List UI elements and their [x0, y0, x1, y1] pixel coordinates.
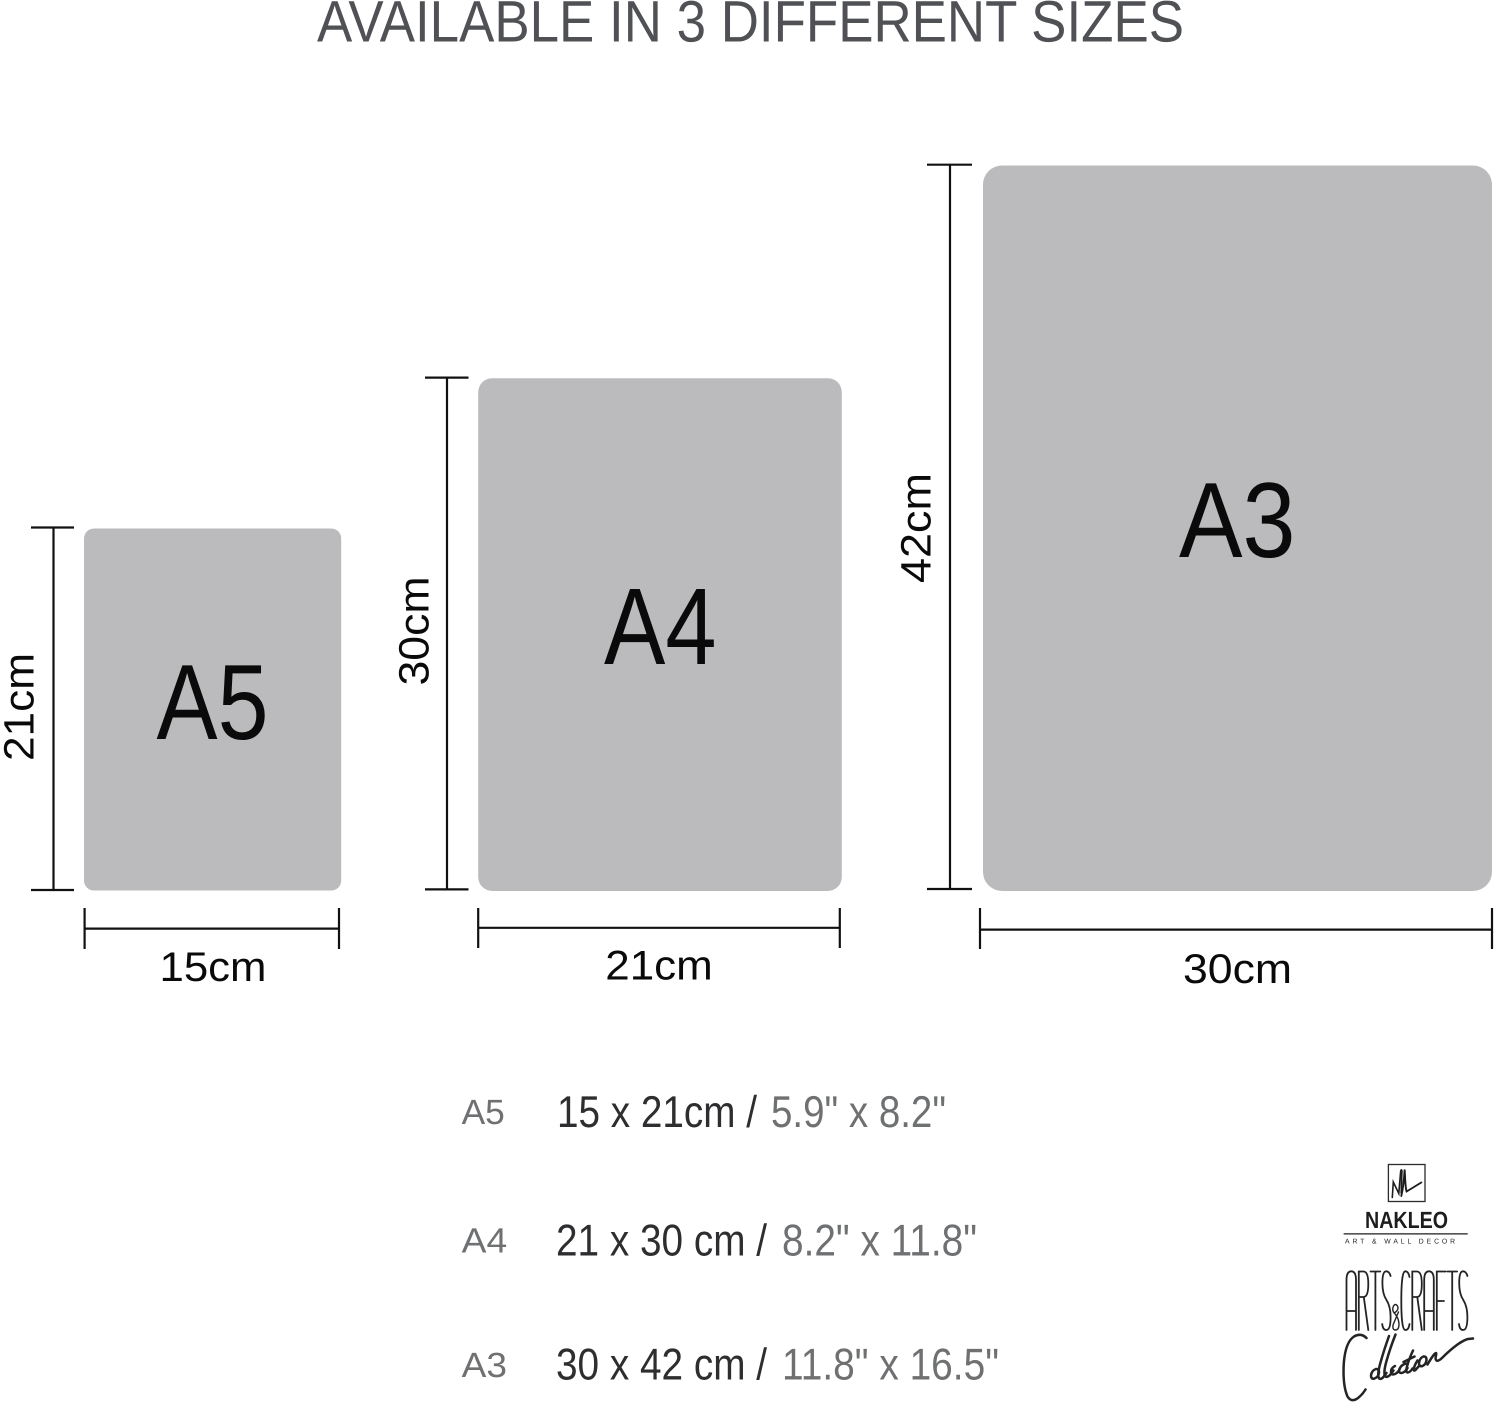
svg-text:8.2" x 11.8": 8.2" x 11.8" [782, 1217, 977, 1266]
svg-text:15 x 21cm /: 15 x 21cm / [557, 1088, 758, 1137]
svg-text:ART & WALL DECOR: ART & WALL DECOR [1345, 1239, 1458, 1246]
svg-text:A4: A4 [604, 566, 717, 688]
svg-text:AVAILABLE IN 3 DIFFERENT SIZES: AVAILABLE IN 3 DIFFERENT SIZES [317, 0, 1184, 55]
svg-text:30cm: 30cm [392, 577, 439, 686]
svg-text:21cm: 21cm [605, 942, 713, 989]
svg-text:NAKLEO: NAKLEO [1365, 1207, 1448, 1233]
svg-text:30 x 42 cm /: 30 x 42 cm / [556, 1341, 768, 1390]
svg-text:A3: A3 [1179, 460, 1296, 580]
svg-text:21 x 30 cm /: 21 x 30 cm / [556, 1217, 768, 1266]
svg-text:A5: A5 [157, 642, 269, 762]
svg-text:A5: A5 [462, 1093, 505, 1132]
svg-text:30cm: 30cm [1183, 945, 1292, 992]
svg-text:21cm: 21cm [0, 653, 44, 761]
svg-text:A3: A3 [462, 1346, 507, 1385]
svg-text:11.8" x 16.5": 11.8" x 16.5" [782, 1341, 999, 1390]
svg-text:42cm: 42cm [894, 473, 941, 583]
svg-text:5.9" x 8.2": 5.9" x 8.2" [771, 1088, 946, 1137]
svg-text:15cm: 15cm [160, 943, 267, 990]
svg-text:A4: A4 [462, 1222, 508, 1261]
